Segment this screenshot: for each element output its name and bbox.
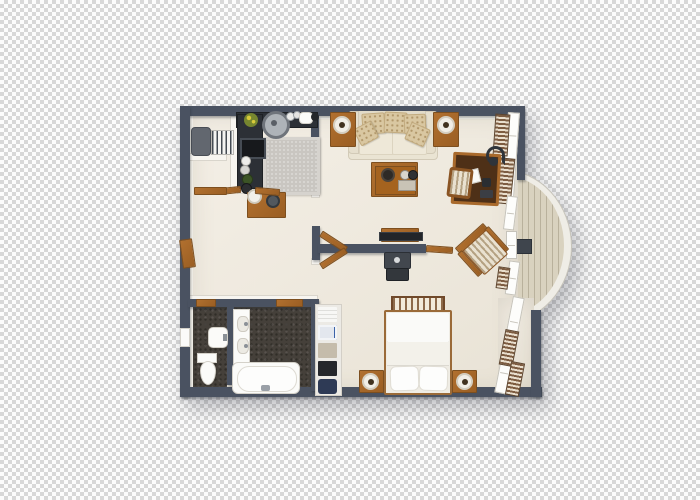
dark-jar: [311, 113, 319, 121]
hall-door-sill: [194, 187, 227, 195]
desk-lamp-base: [489, 157, 498, 166]
kitchen-rug: [263, 137, 320, 195]
toilet-room-door-sill: [196, 299, 216, 307]
shelf-towels-white: [318, 307, 337, 322]
table-lamp-left: [333, 116, 351, 134]
linen-shelf: [315, 304, 342, 396]
shelf-basket-black: [318, 361, 337, 376]
vanity-faucet-2: [244, 344, 248, 348]
decor-item-2: [408, 170, 418, 180]
desk-accessory: [482, 178, 491, 187]
bathtub-faucet: [261, 385, 270, 391]
bedside-lamp-right: [456, 373, 473, 390]
bathroom-door-sill: [276, 299, 303, 307]
radiator: [211, 130, 234, 155]
transparency-checkerboard-background: [0, 0, 700, 500]
shelf-towels-beige: [318, 343, 337, 358]
shelf-basket-navy: [318, 379, 337, 394]
av-cabinet: [384, 252, 411, 269]
av-drawer: [386, 268, 409, 281]
av-dial: [394, 257, 400, 263]
duvet-upper: [387, 313, 449, 343]
luggage: [191, 127, 211, 156]
shelf-towels-blue: [318, 325, 337, 340]
decor-bowl: [381, 168, 395, 182]
tv: [379, 232, 423, 241]
desk-chair: [446, 167, 473, 200]
desk-book: [480, 190, 493, 198]
floor-plan-render: [0, 0, 700, 500]
potted-plant: [244, 113, 258, 127]
bedside-lamp-left: [362, 373, 379, 390]
duvet-lower: [387, 342, 449, 366]
sink-drain: [271, 120, 277, 126]
towel-shelf: [180, 328, 190, 347]
table-lamp-right: [437, 116, 455, 134]
basin-faucet: [223, 334, 227, 341]
pillow-right: [419, 366, 449, 392]
console-bowl: [266, 194, 280, 208]
vanity-faucet-1: [244, 322, 248, 326]
exterior-wall-right-bottom: [531, 310, 541, 397]
decor-tray: [398, 180, 416, 191]
pillow-left: [390, 366, 420, 392]
partition-wall-stub: [312, 226, 320, 260]
